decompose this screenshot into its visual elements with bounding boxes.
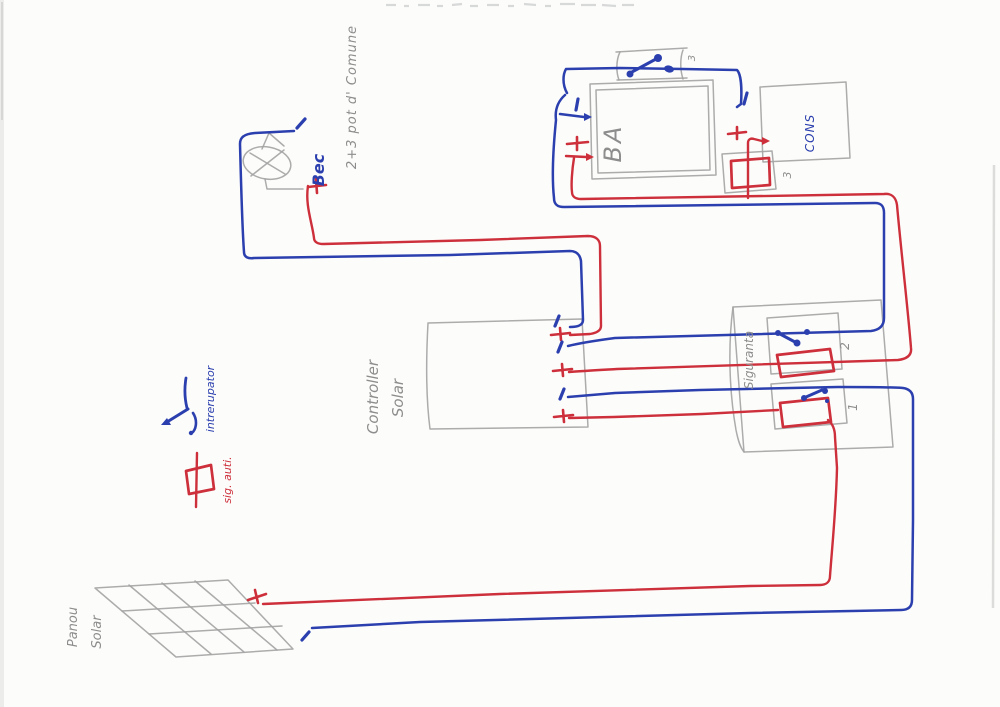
plus-cons [728,127,746,139]
controller-label-line1: Controller [364,359,382,434]
circuit1-number: 1 [846,403,860,411]
controller-label-line2: Solar [389,378,407,417]
fuse3-number: 3 [781,172,794,179]
plus-panel [248,590,266,603]
wire-lamp-positive [307,186,601,335]
solar-panel [95,580,293,657]
wire-lamp-negative [240,131,583,327]
fusebox-label: Siguranta [742,331,756,389]
legend-switch-label: intrerupator [204,364,217,432]
schematic-canvas: Bec 2+3 pot d' Comune BA CONS 3 3 Sigura… [0,0,1000,707]
scanned-paper: Bec 2+3 pot d' Comune BA CONS 3 3 Sigura… [0,0,1000,707]
switch3-box [616,48,687,80]
legend-fuse-symbol [186,453,214,507]
legend-switch-symbol [161,378,196,435]
minus-panel [302,632,309,640]
panel-label-line2: Solar [90,614,105,649]
minus-controller-c [560,389,564,399]
consumer-label: CONS [803,114,817,152]
battery-label: BA [599,124,627,163]
minus-controller-b [558,342,562,352]
switch3-symbol [627,54,675,78]
plus-controller-a [551,328,570,340]
fuse1-symbol [780,398,831,427]
wire-fuse3-branch [748,137,770,198]
circuit2-number: 2 [838,342,852,350]
note-label: 2+3 pot d' Comune [345,25,360,169]
minus-controller-a [555,316,559,326]
panel-label-line1: Panou [66,607,81,647]
minus-battery [576,99,578,110]
legend-fuse-label: sig. auti. [221,456,234,503]
plus-controller-b [553,364,572,376]
bulb-label: Bec [309,153,328,186]
wire-panel-positive [263,410,837,604]
bulb-lamp-symbol [241,131,303,189]
switch2-symbol [775,329,810,347]
plus-battery [567,137,588,150]
switch3-number: 3 [687,55,698,61]
minus-lamp [297,119,305,128]
minus-cons [744,93,747,104]
plus-controller-c [554,410,573,422]
top-scan-smudge [386,4,634,6]
